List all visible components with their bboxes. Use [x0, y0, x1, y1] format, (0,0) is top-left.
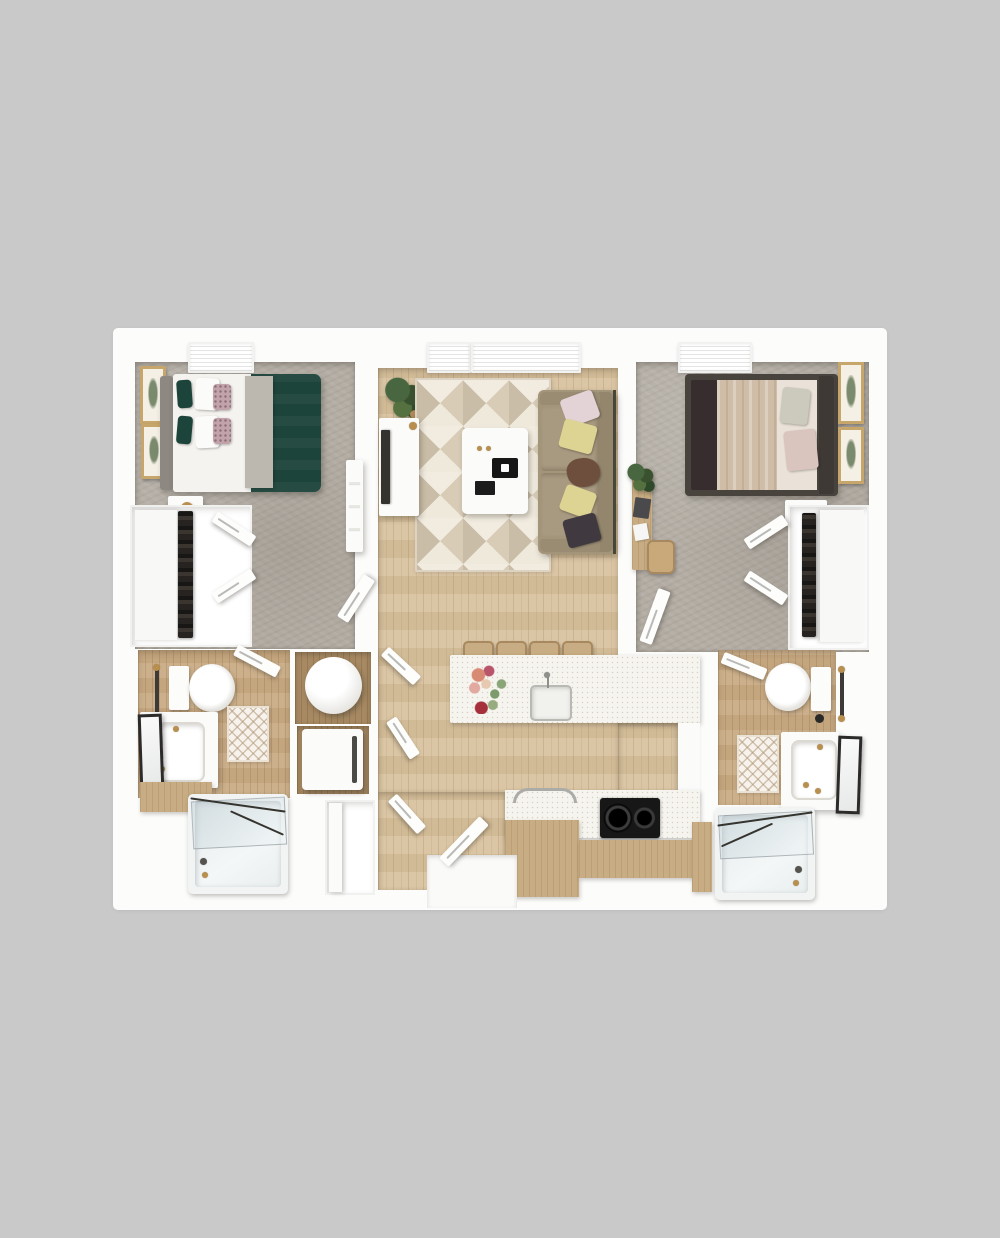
bedroom1-closet-shelving	[135, 510, 177, 640]
bedroom1-window	[188, 342, 254, 373]
living-room-window-left	[427, 342, 471, 373]
console-decor	[409, 422, 417, 430]
bedroom1-closet-hanging-clothes	[178, 511, 193, 638]
bed2-pillow-blush	[783, 428, 819, 471]
bathroom1-toilet-bowl	[189, 664, 235, 712]
bathroom1-leaning-mirror	[138, 714, 165, 791]
living-room-window-right	[471, 342, 581, 373]
bathroom2-bathtub	[715, 808, 815, 900]
water-heater	[305, 657, 362, 714]
dresser-drawer-line	[349, 528, 360, 530]
bed1-green-pillow-top	[176, 380, 193, 409]
cooktop	[600, 798, 660, 838]
dresser-drawer-line	[349, 505, 360, 507]
tub-faucet	[795, 866, 802, 873]
bed1-patterned-pillow-top	[213, 384, 231, 410]
bed1-gray-throw	[245, 376, 273, 488]
bedroom2-closet-hanging-clothes	[802, 513, 816, 637]
tray-decor	[501, 464, 509, 472]
bed2-pillow-gray	[779, 387, 811, 426]
bedroom2-wall-art-bottom	[838, 427, 864, 484]
framed-photo-icon	[845, 375, 856, 411]
bathroom1-towel-bar	[155, 668, 159, 716]
tub-handle	[202, 872, 208, 878]
towel-bar-cap	[838, 715, 845, 722]
tv	[381, 430, 390, 504]
bed2-frame	[685, 374, 838, 496]
bathroom2-towel-bar	[840, 670, 844, 718]
bathroom2-bath-mat	[737, 735, 779, 793]
bathroom1-bathtub	[188, 794, 288, 894]
entry-landing	[427, 855, 517, 908]
toilet-flush-button	[815, 714, 824, 723]
kitchen-cabinet-right	[579, 840, 700, 878]
range-handle	[513, 788, 577, 803]
tub-faucet	[200, 858, 207, 865]
bedroom2-desk-plant	[627, 462, 657, 496]
kitchen-faucet-head	[544, 672, 550, 678]
bed2-draped-blanket	[717, 380, 777, 490]
screenshot-canvas	[0, 0, 1000, 1238]
bathroom1-bath-mat	[227, 706, 269, 762]
bathroom1-toilet-tank	[169, 666, 189, 710]
coffee-table-tray	[492, 458, 518, 478]
bed1-patterned-pillow-bottom	[213, 418, 231, 444]
bedroom2-window	[678, 342, 752, 373]
bathroom1-sink	[157, 722, 205, 782]
botanical-art-icon	[147, 378, 158, 411]
apartment-floor-plan	[115, 330, 885, 908]
candle	[477, 446, 482, 451]
bed1-headboard	[160, 376, 173, 490]
kitchen-sink	[530, 685, 572, 721]
framed-photo-icon	[845, 439, 856, 472]
linen-closet-door	[329, 803, 342, 892]
bedroom2-wall-art-top	[838, 362, 864, 424]
bathroom2-sink	[791, 740, 837, 800]
sofa-frame-edge	[613, 390, 616, 554]
coffee-table-books	[475, 481, 495, 495]
washer-door-slot	[352, 736, 357, 782]
flower-bouquet	[465, 664, 513, 714]
bathroom2-faucet	[817, 744, 823, 750]
bedroom2-closet-shelving	[820, 510, 864, 642]
vanity-knob	[803, 782, 809, 788]
vanity-knob	[815, 788, 821, 794]
bed1-green-pillow-bottom	[176, 415, 193, 444]
bathroom1-faucet	[173, 726, 179, 732]
dresser-drawer-line	[349, 482, 360, 484]
bedroom1-dresser	[346, 460, 363, 552]
towel-bar-cap	[153, 664, 160, 671]
bed2-headboard	[819, 376, 834, 494]
botanical-art-icon	[148, 436, 159, 467]
towel-bar-cap	[838, 666, 845, 673]
tub-handle	[793, 880, 799, 886]
sofa-backrest	[599, 392, 613, 552]
bathroom2-toilet-tank	[811, 667, 831, 711]
bathroom2-toilet-bowl	[765, 663, 811, 711]
washer-dryer	[302, 729, 363, 790]
candle	[486, 446, 491, 451]
bathroom2-leaning-mirror	[836, 736, 863, 815]
kitchen-end-cabinet	[692, 822, 712, 892]
bed2-folded-duvet	[691, 380, 717, 490]
desk-chair	[647, 540, 675, 574]
desk-papers	[633, 523, 650, 541]
laptop	[633, 497, 652, 519]
